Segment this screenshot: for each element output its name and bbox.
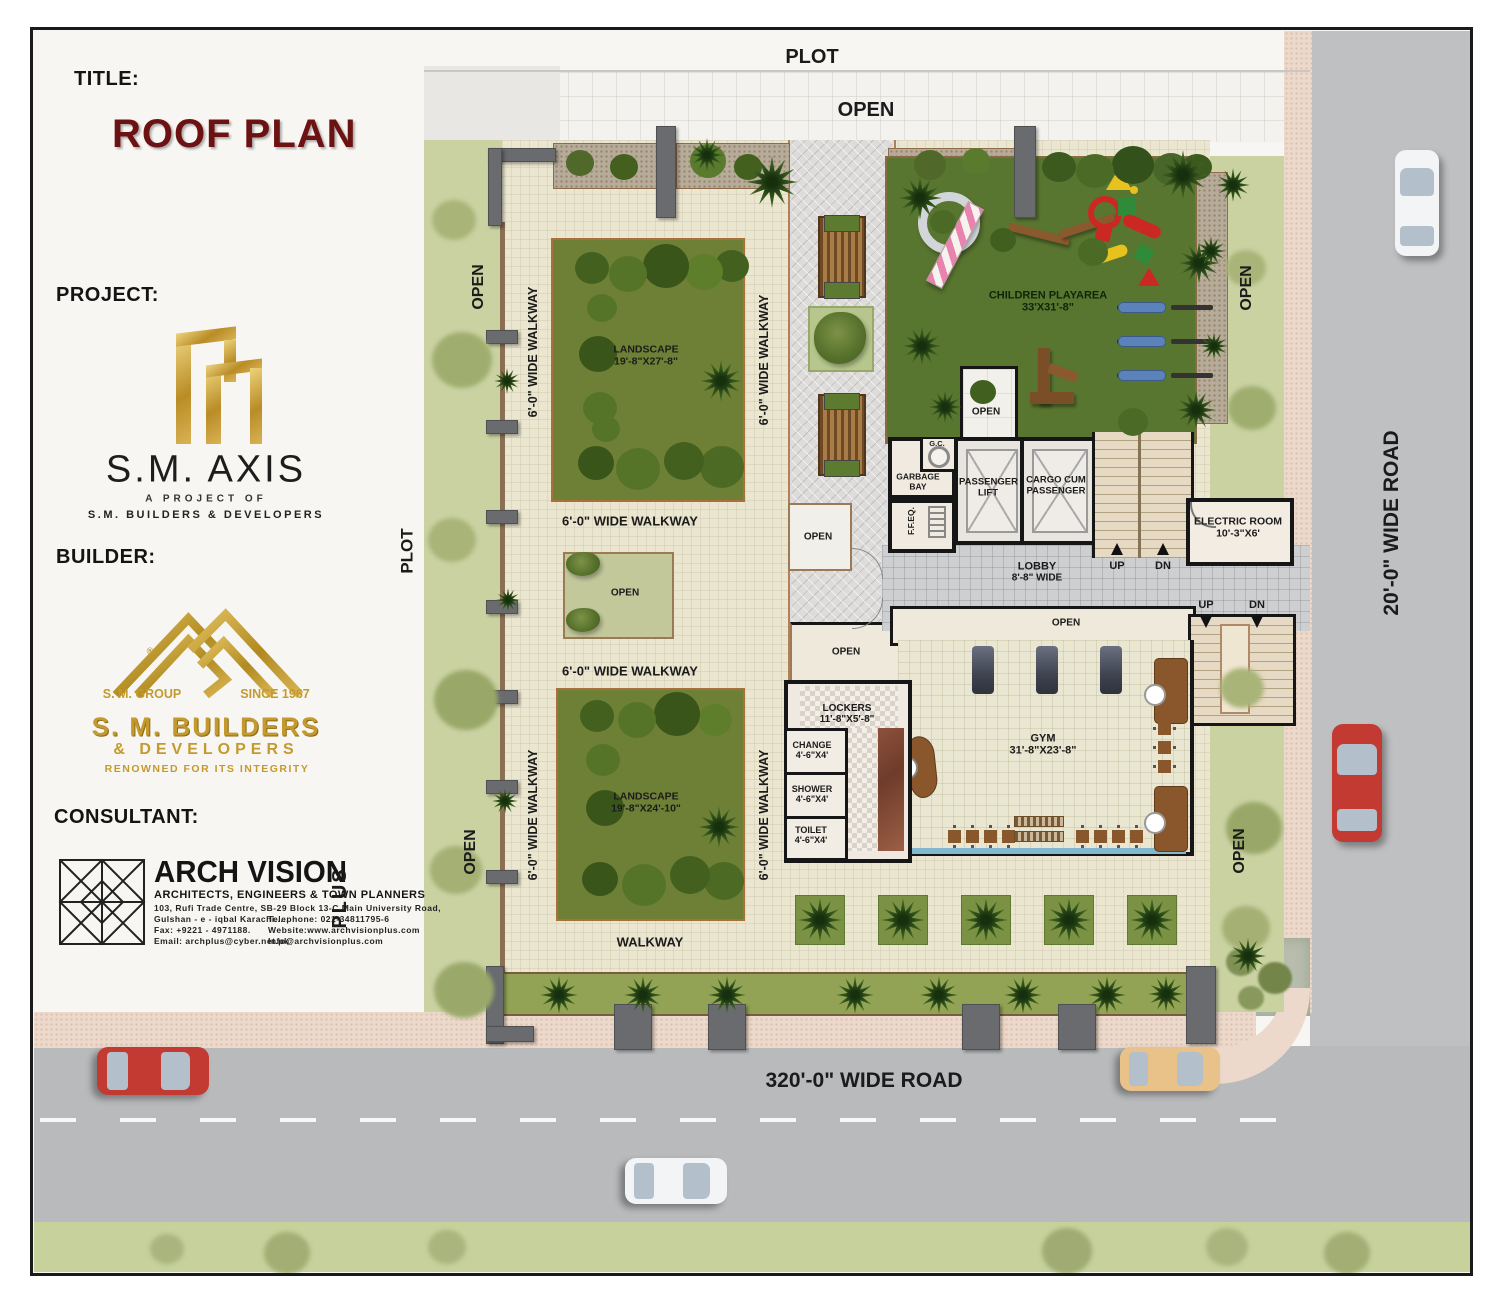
- top-planter-shrubs: [566, 150, 594, 176]
- consultant-fax: Fax: +9221 - 4971188.: [154, 925, 251, 935]
- right-pebble-path: [1196, 172, 1228, 424]
- wood-bench: [818, 216, 866, 298]
- wall-post: [486, 690, 518, 704]
- seesaw-icon: [1118, 370, 1166, 381]
- project-name: S.M. AXIS: [106, 449, 306, 492]
- play-ring-icon: [1088, 196, 1122, 230]
- play-deck-icon: [1118, 198, 1136, 216]
- corner-wall-br: [1186, 966, 1216, 1044]
- down-arrow-icon: [1200, 616, 1212, 628]
- open-label-left-2: OPEN: [462, 829, 480, 874]
- gym-stool: [1158, 722, 1171, 735]
- wood-bench: [818, 394, 866, 476]
- palm-planter-square: [1127, 895, 1177, 945]
- consultant-address-1: 103, Rufi Trade Centre, SB-29 Block 13-C…: [154, 903, 441, 913]
- treadmill: [1036, 646, 1058, 694]
- lane-divider-dashes: [40, 1118, 1288, 1122]
- stair-divider: [1138, 432, 1141, 558]
- walkway-label-v3: 6'-0" WIDE WALKWAY: [526, 750, 540, 881]
- car: [1395, 150, 1439, 256]
- open-strip-label: OPEN: [1052, 617, 1080, 628]
- right-road: [1310, 31, 1470, 1222]
- walkway-label-h2: 6'-0" WIDE WALKWAY: [562, 665, 698, 680]
- desk-chair: [1144, 684, 1166, 706]
- wall-pier-1: [656, 126, 676, 218]
- ffeq-label: F.F.EQ.: [907, 507, 917, 535]
- cargo-lift-label: CARGO CUM PASSENGER: [1024, 475, 1088, 496]
- consultant-name: ARCH VISION: [154, 854, 347, 890]
- car-windshield: [1400, 168, 1434, 196]
- walkway-label-v1: 6'-0" WIDE WALKWAY: [526, 287, 540, 418]
- lockers-label: LOCKERS11'-8"X5'-8": [820, 703, 875, 725]
- palm-tree-icon: [798, 898, 842, 942]
- builder-tagline: RENOWNED FOR ITS INTEGRITY: [105, 764, 310, 776]
- lobby-label: LOBBY8'-8" WIDE: [1012, 560, 1062, 584]
- palm-tree-icon: [1047, 898, 1091, 942]
- boundary-wall-top-v: [488, 148, 502, 226]
- car-windshield: [161, 1052, 190, 1090]
- treadmill: [1100, 646, 1122, 694]
- palm-planter-square: [961, 895, 1011, 945]
- builder-group: S. M. GROUP: [103, 687, 181, 701]
- car-windshield: [683, 1163, 710, 1199]
- landscape2-label: LANDSCAPE19'-8"X24'-10": [611, 791, 681, 815]
- play-slide-icon: [1121, 212, 1163, 240]
- down-arrow-icon: [1251, 616, 1263, 628]
- passenger-lift-label: PASSENGER LIFT: [959, 477, 1017, 498]
- car-rear-window: [1400, 226, 1434, 246]
- gym-stool: [1158, 760, 1171, 773]
- play-pole-icon: [1130, 186, 1138, 194]
- gc-label: G.C.: [929, 440, 944, 448]
- car-rear-window: [1129, 1052, 1148, 1086]
- project-logo: [160, 328, 270, 446]
- play-roof-icon: [1138, 268, 1160, 286]
- logo-tower-bar: [250, 368, 262, 444]
- treadmill: [972, 646, 994, 694]
- car-rear-window: [1337, 809, 1377, 831]
- open-label-right-1: OPEN: [1238, 265, 1256, 310]
- playarea-shrubs: [930, 210, 956, 234]
- children-playarea-label: CHILDREN PLAYAREA33'X31'-8": [989, 290, 1107, 315]
- climber-icon: [1030, 392, 1074, 404]
- landscape2-shrubs-bottom: [582, 862, 618, 896]
- open-court-a-label: OPEN: [804, 531, 832, 542]
- desk-chair: [1144, 812, 1166, 834]
- walkway-label-bottom: WALKWAY: [617, 936, 684, 951]
- builder-label: BUILDER:: [56, 546, 156, 569]
- dn-label-right: DN: [1249, 599, 1265, 611]
- up-label-right: UP: [1198, 599, 1213, 611]
- palm-tree-icon: [964, 898, 1008, 942]
- car: [1120, 1047, 1220, 1091]
- ladder-icon: [928, 506, 946, 538]
- logo-tower-bar: [206, 370, 221, 444]
- dumbbell-rack: [1014, 831, 1064, 842]
- play-deck-icon: [1133, 243, 1155, 265]
- gym-window-strip: [902, 848, 1186, 854]
- dn-label-central: DN: [1155, 560, 1171, 572]
- open-label-top: OPEN: [838, 99, 895, 121]
- landscape2-shrubs-top: [580, 700, 614, 732]
- wall-post: [486, 510, 518, 524]
- bottom-green-verge: [34, 1222, 1470, 1272]
- walkway-label-v4: 6'-0" WIDE WALKWAY: [757, 750, 771, 881]
- landscape1-shrubs-top: [575, 252, 609, 284]
- consultant-logo: [56, 856, 148, 948]
- drawing-frame: PLOT OPEN PLOT OPEN OPEN OPEN OPEN 6'-0"…: [30, 27, 1473, 1276]
- right-stair-landing: [1220, 624, 1250, 714]
- car: [625, 1158, 727, 1204]
- toilet-label: TOILET4'-6"X4': [795, 825, 828, 845]
- palm-tree-icon: [1130, 898, 1174, 942]
- open-court-l-label: OPEN: [611, 587, 639, 598]
- palm-planter-square: [795, 895, 845, 945]
- gc-circle: [928, 446, 950, 468]
- builder-name-1: S. M. BUILDERS: [92, 712, 321, 741]
- logo-tower-bar: [176, 338, 191, 444]
- gym-stool-row: [948, 830, 961, 843]
- builder-since: SINCE 1967: [240, 687, 309, 701]
- shower-label: SHOWER4'-6"X4': [792, 784, 833, 804]
- project-subtitle-1: A PROJECT OF: [145, 493, 267, 504]
- car-rear-window: [634, 1163, 653, 1199]
- open-court-b-label: OPEN: [832, 646, 860, 657]
- palm-tree-icon: [881, 898, 925, 942]
- open-label-right-2: OPEN: [1231, 828, 1249, 873]
- bottom-column-4: [1058, 1004, 1096, 1050]
- wall-post: [486, 870, 518, 884]
- car-windshield: [1337, 744, 1377, 775]
- play-roof-icon: [1106, 168, 1132, 190]
- plot-corner-slab: [424, 66, 560, 140]
- play-box-icon: [1095, 225, 1113, 243]
- corner-wall-bl-h: [486, 1026, 534, 1042]
- wall-post: [486, 780, 518, 794]
- plot-label-top: PLOT: [785, 46, 838, 68]
- title-label: TITLE:: [74, 68, 139, 91]
- wall-pier-2: [1014, 126, 1036, 218]
- wall-post: [486, 330, 518, 344]
- palm-planter-square: [1044, 895, 1094, 945]
- play-slide-icon: [1093, 243, 1129, 265]
- project-label: PROJECT:: [56, 284, 159, 307]
- car: [97, 1047, 209, 1095]
- car-windshield: [1177, 1052, 1203, 1086]
- dumbbell-rack: [1014, 816, 1064, 827]
- bottom-column-1: [614, 1004, 652, 1050]
- gym-stool-row: [1076, 830, 1089, 843]
- plot-label-left: PLOT: [397, 528, 416, 573]
- playarea-open-label: OPEN: [972, 406, 1000, 417]
- roof-plan-sheet: PLOT OPEN PLOT OPEN OPEN OPEN OPEN 6'-0"…: [0, 0, 1500, 1300]
- consultant-plus: PLUS: [329, 867, 351, 928]
- playarea-hedge: [1042, 152, 1076, 182]
- up-label-central: UP: [1109, 560, 1124, 572]
- landscape1-label: LANDSCAPE19'-8"X27'-8": [613, 344, 678, 368]
- plot-divider-line: [424, 70, 1310, 72]
- wall-post: [486, 420, 518, 434]
- palm-planter-square: [878, 895, 928, 945]
- consultant-email-2: Info@archvisionplus.com: [268, 936, 383, 946]
- up-arrow-icon: [1157, 543, 1169, 555]
- garbage-bay-label: GARBAGE BAY: [891, 472, 945, 491]
- walkway-label-h1: 6'-0" WIDE WALKWAY: [562, 515, 698, 530]
- builder-reg-mark: ®: [147, 646, 154, 656]
- open-label-left-1: OPEN: [470, 264, 488, 309]
- up-arrow-icon: [1111, 543, 1123, 555]
- bottom-column-3: [962, 1004, 1000, 1050]
- tree-planter: [808, 306, 874, 372]
- builder-name-2: & DEVELOPERS: [113, 741, 298, 759]
- gym-label: GYM31'-8"X23'-8": [1009, 733, 1076, 758]
- playarea-open-room: [960, 366, 1018, 444]
- central-staircase: [1092, 432, 1194, 558]
- car: [1332, 724, 1382, 842]
- walkway-label-v2: 6'-0" WIDE WALKWAY: [757, 295, 771, 426]
- left-lawn-shrubs: [432, 200, 476, 240]
- play-structure: [1088, 168, 1172, 298]
- car-rear-window: [107, 1052, 128, 1090]
- change-label: CHANGE4'-6"X4': [792, 740, 831, 760]
- marble-wall: [878, 728, 904, 851]
- project-subtitle-2: S.M. BUILDERS & DEVELOPERS: [88, 509, 324, 521]
- consultant-label: CONSULTANT:: [54, 806, 199, 829]
- planter-tree-icon: [814, 312, 866, 364]
- seesaw-icon: [1118, 336, 1166, 347]
- road-bottom-label: 320'-0" WIDE ROAD: [766, 1069, 963, 1093]
- consultant-profession: ARCHITECTS, ENGINEERS & TOWN PLANNERS: [154, 889, 425, 901]
- landscape1-shrubs-bottom: [578, 446, 614, 480]
- sheet-title: ROOF PLAN: [112, 112, 357, 157]
- verge-shrub-cluster: [150, 1234, 184, 1264]
- seesaw-icon: [1118, 302, 1166, 313]
- gym-stool: [1158, 741, 1171, 754]
- road-right-label: 20'-0" WIDE ROAD: [1380, 430, 1404, 615]
- electric-room-label: ELECTRIC ROOM10'-3"X6': [1194, 516, 1282, 540]
